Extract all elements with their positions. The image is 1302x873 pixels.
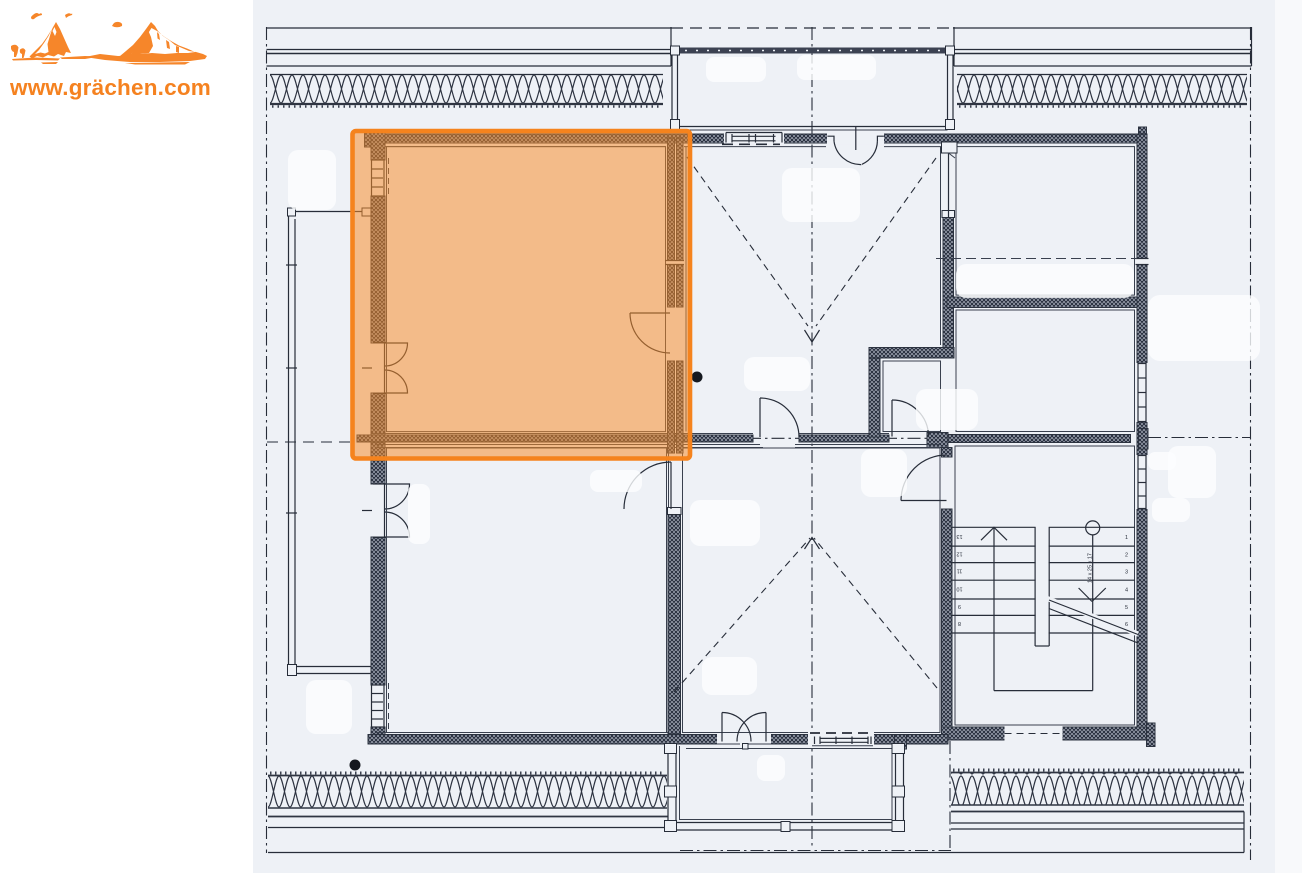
svg-text:3: 3 bbox=[1125, 570, 1128, 576]
svg-text:10: 10 bbox=[956, 586, 962, 592]
svg-text:6: 6 bbox=[1125, 622, 1128, 628]
svg-text:1: 1 bbox=[1125, 535, 1128, 541]
svg-text:14 x 25 x 17: 14 x 25 x 17 bbox=[1088, 553, 1094, 583]
svg-text:11: 11 bbox=[957, 568, 963, 574]
svg-text:www.grächen.com: www.grächen.com bbox=[9, 75, 211, 100]
svg-text:4: 4 bbox=[1125, 588, 1128, 594]
svg-text:9: 9 bbox=[958, 603, 961, 609]
svg-text:12: 12 bbox=[956, 551, 962, 557]
svg-text:8: 8 bbox=[958, 620, 961, 626]
svg-text:5: 5 bbox=[1125, 605, 1128, 611]
svg-text:2: 2 bbox=[1125, 553, 1128, 559]
svg-text:13: 13 bbox=[956, 533, 962, 539]
